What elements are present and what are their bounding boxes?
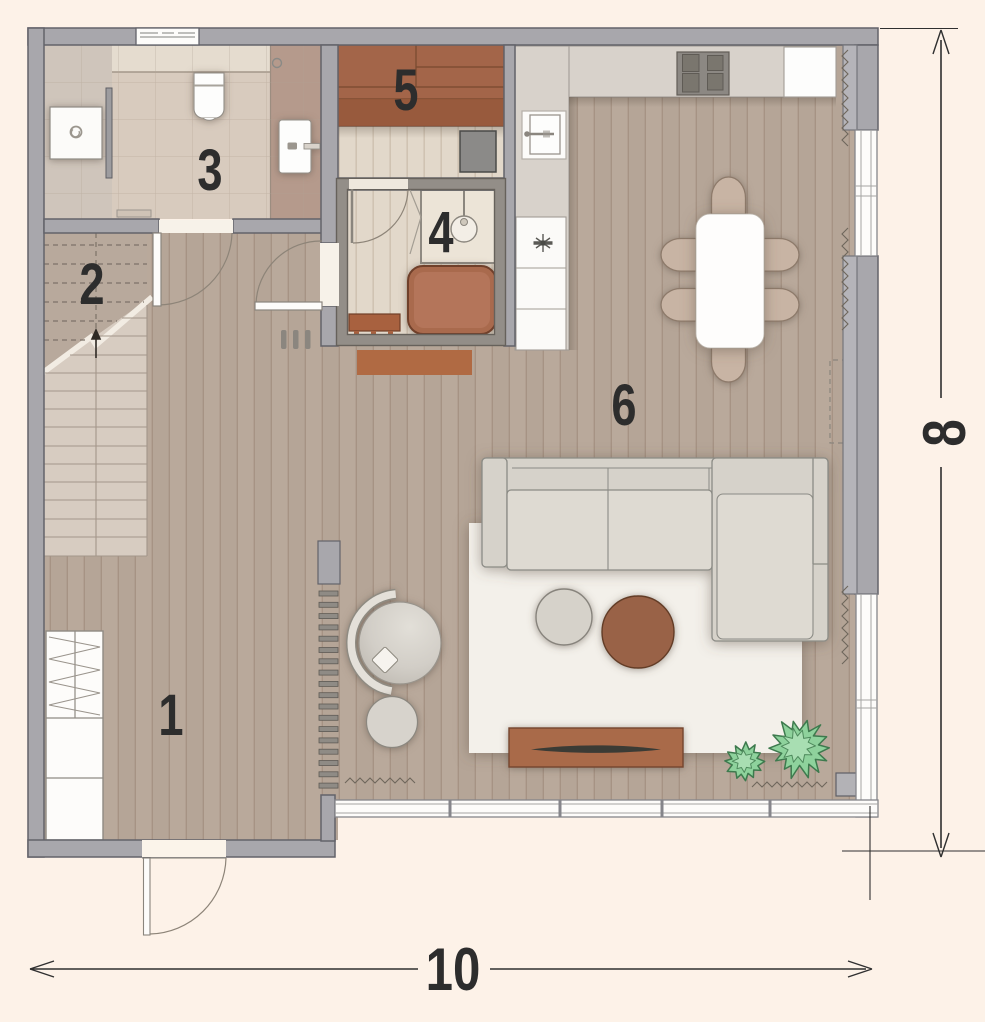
svg-text:2: 2	[79, 253, 104, 318]
svg-text:8: 8	[910, 419, 978, 446]
svg-text:3: 3	[197, 139, 222, 204]
svg-text:5: 5	[393, 59, 418, 124]
svg-text:1: 1	[158, 684, 183, 749]
svg-text:10: 10	[426, 935, 481, 1003]
svg-text:4: 4	[428, 201, 453, 266]
svg-text:6: 6	[611, 374, 636, 439]
